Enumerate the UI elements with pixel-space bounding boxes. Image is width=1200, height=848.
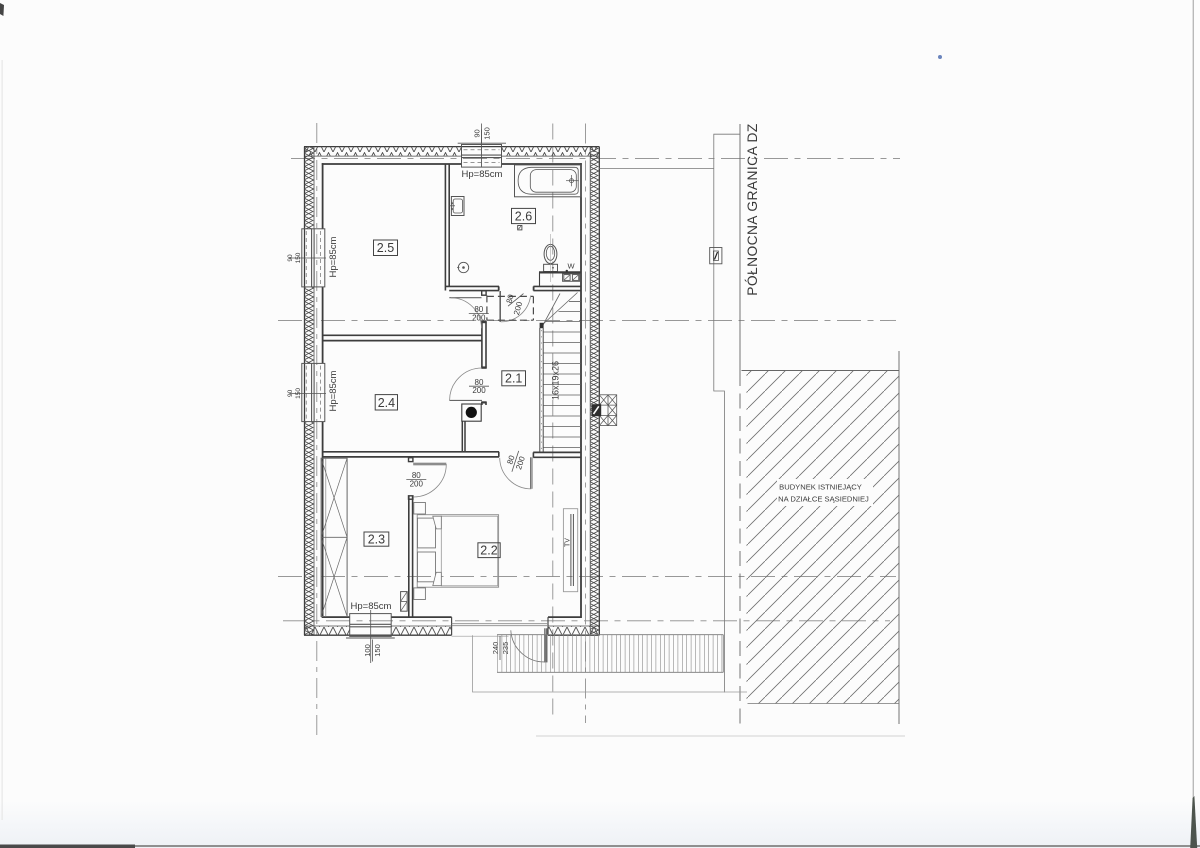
svg-text:PÓŁNOCNA GRANICA DZ: PÓŁNOCNA GRANICA DZ <box>744 123 760 295</box>
svg-text:90: 90 <box>472 129 481 137</box>
svg-text:200: 200 <box>472 386 486 395</box>
svg-text:NA DZIAŁCE SĄSIEDNIEJ: NA DZIAŁCE SĄSIEDNIEJ <box>778 495 869 504</box>
svg-text:BUDYNEK ISTNIEJĄCY: BUDYNEK ISTNIEJĄCY <box>779 483 862 492</box>
svg-text:100: 100 <box>363 644 372 657</box>
svg-text:90: 90 <box>287 254 294 262</box>
svg-text:200: 200 <box>472 314 486 323</box>
svg-text:2.5: 2.5 <box>377 241 394 255</box>
svg-text:Hp=85cm: Hp=85cm <box>328 236 339 277</box>
svg-text:90: 90 <box>287 389 294 397</box>
svg-text:2.1: 2.1 <box>505 372 522 386</box>
svg-text:150: 150 <box>295 388 302 399</box>
svg-text:Hp=85cm: Hp=85cm <box>462 169 503 180</box>
svg-text:Hp=85cm: Hp=85cm <box>351 601 392 612</box>
svg-text:150: 150 <box>373 644 382 657</box>
svg-text:150: 150 <box>295 252 302 263</box>
svg-text:2.4: 2.4 <box>378 396 395 410</box>
svg-text:2.6: 2.6 <box>515 209 532 223</box>
svg-text:200: 200 <box>410 479 424 488</box>
svg-text:TV: TV <box>565 538 572 547</box>
svg-text:150: 150 <box>482 127 491 140</box>
svg-text:240: 240 <box>491 642 500 655</box>
svg-text:W: W <box>567 262 575 271</box>
svg-text:2.3: 2.3 <box>368 533 385 547</box>
svg-text:2.2: 2.2 <box>480 544 497 558</box>
svg-text:Hp=85cm: Hp=85cm <box>328 370 339 411</box>
svg-text:16x19x26: 16x19x26 <box>551 361 561 400</box>
